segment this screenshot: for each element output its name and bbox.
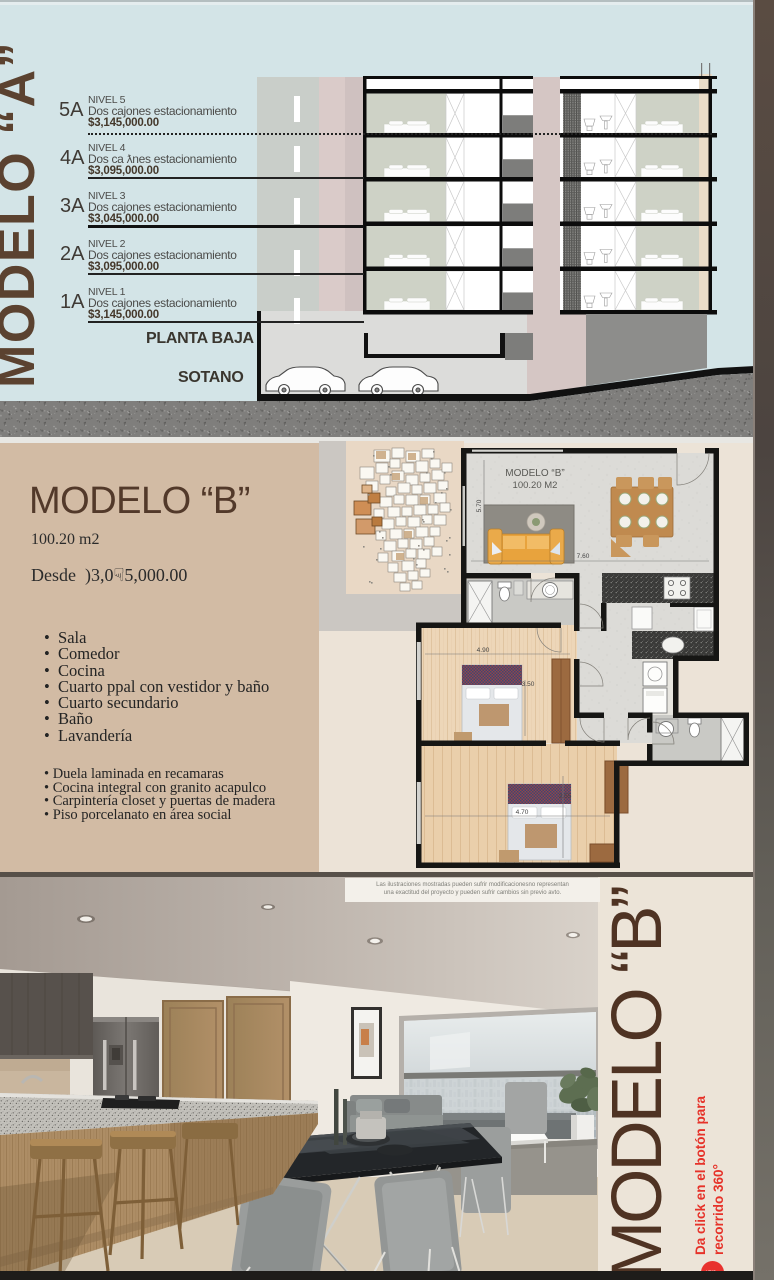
svg-text:100.20 M2: 100.20 M2 [513,480,558,491]
svg-text:5.70: 5.70 [476,499,483,512]
svg-text:3.50: 3.50 [522,681,535,688]
svg-text:4.70: 4.70 [516,809,529,816]
svg-text:MODELO “B”: MODELO “B” [505,468,564,479]
svg-text:7.60: 7.60 [577,553,590,560]
svg-text:2.55: 2.55 [559,793,572,800]
svg-text:4.90: 4.90 [477,647,490,654]
